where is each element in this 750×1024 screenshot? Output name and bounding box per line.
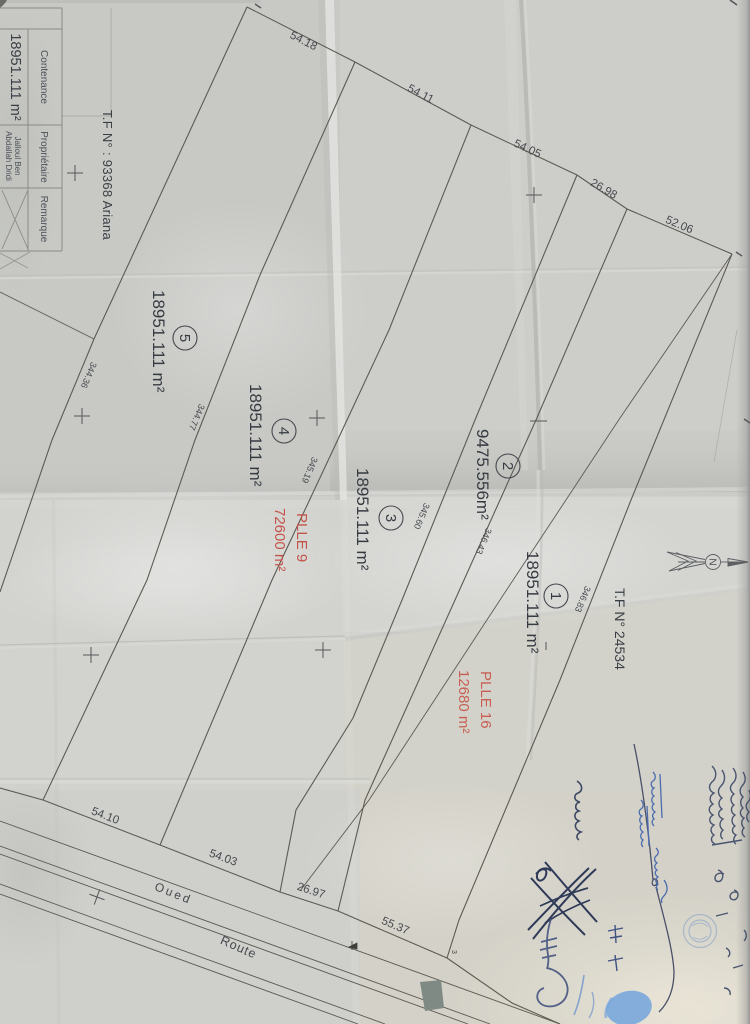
svg-text:18951.111 m²: 18951.111 m² (149, 290, 168, 393)
svg-text:18951.111 m²: 18951.111 m² (7, 33, 23, 120)
svg-text:3: 3 (382, 514, 399, 522)
svg-text:18951.111 m²: 18951.111 m² (353, 468, 372, 571)
svg-text:4: 4 (275, 427, 292, 435)
svg-text:PLLE 9: PLLE 9 (293, 513, 310, 562)
svg-text:Remarque: Remarque (38, 196, 49, 243)
svg-text:PLLE 16: PLLE 16 (477, 671, 494, 729)
svg-text:9475.556m²: 9475.556m² (473, 429, 492, 520)
svg-text:Contenance: Contenance (38, 50, 49, 104)
svg-text:T.F N° : 93368 Ariana: T.F N° : 93368 Ariana (100, 110, 115, 240)
svg-text:1: 1 (547, 592, 564, 600)
svg-text:12680 m²: 12680 m² (455, 670, 472, 733)
svg-text:3: 3 (450, 950, 457, 954)
svg-text:Abdallah Dridi: Abdallah Dridi (4, 131, 13, 181)
svg-text:2: 2 (499, 462, 516, 470)
svg-text:18951.111 m²: 18951.111 m² (246, 384, 265, 487)
svg-text:Jalloul Ben: Jalloul Ben (13, 136, 22, 175)
svg-text:18951.111 m²: 18951.111 m² (523, 551, 542, 654)
svg-text:Propriétaire: Propriétaire (38, 131, 49, 183)
svg-text:72600 m²: 72600 m² (271, 508, 288, 571)
svg-text:T.F N° 24534: T.F N° 24534 (612, 588, 628, 670)
svg-text:N: N (707, 558, 718, 565)
svg-text:5: 5 (176, 334, 193, 342)
